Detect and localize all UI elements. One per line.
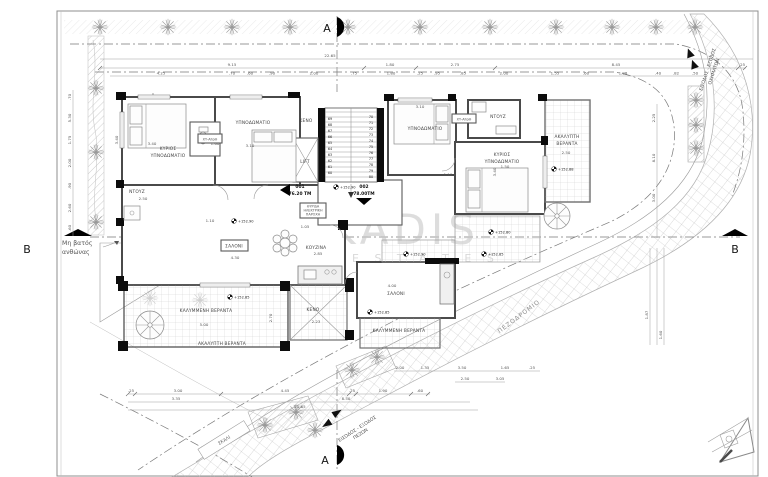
repeated-value: 3.35 [172,396,181,401]
repeated-value: 68 [328,123,332,127]
repeated-value: 2.00 [396,365,405,370]
repeated-value: 2.50 [562,150,571,155]
label-master-left-2: ΥΠΝΟΔΩΜΑΤΙΟ [150,153,186,159]
repeated-value: 4.30 [231,255,240,260]
vehicle-entry-arrows-icon [684,47,699,69]
dim-row-top-main: 9.151.802.758.45.25 [228,62,746,67]
north-arrow-icon [708,418,754,462]
level-marker-icon [368,310,373,315]
bed-icon [128,104,186,148]
repeated-value: 66 [328,135,332,139]
label-bedroom-right: ΥΠΝΟΔΩΜΑΤΙΟ [407,126,443,132]
repeated-value: +152.85 [234,296,250,300]
repeated-value: 8.50 [342,396,351,401]
repeated-value: 9.15 [228,62,237,67]
repeated-value: 8.45 [612,62,621,67]
repeated-value: +152.85 [488,253,504,257]
repeated-value: 2.70 [268,313,273,322]
repeated-value: 2.50 [139,196,148,201]
repeated-value: 3.10 [416,104,425,109]
repeated-value: 2.85 [314,251,323,256]
repeated-value: .40 [655,71,662,76]
dim-bottom-row3: 21.65 [294,404,306,409]
repeated-value: 71 [369,121,373,125]
repeated-value: 4.25 [157,71,166,76]
floor-plan-sheet: A A B B KADIS E S T A T E S [0,0,768,477]
repeated-value: 4.45 [281,388,290,393]
label-covered-veranda-002: ΚΑΛΥΜΜΕΝΗ ΒΕΡΑΝΤΑ [373,328,426,334]
label-lift: LIFT [300,159,310,165]
flowerbed-label-1: Μη βατός [62,239,93,247]
repeated-value: 5.00 [200,322,209,327]
repeated-value: 75 [369,145,373,149]
level-marker-icon [232,219,237,224]
repeated-value: 2.60 [67,203,72,212]
repeated-value: 2.00 [310,71,319,76]
repeated-value: 3.40 [148,141,157,146]
repeated-value: 64 [328,147,332,151]
dim-road-row2: 2.503.05 [461,376,505,381]
label-master-right-1: ΚΥΡΙΟΣ [494,152,511,158]
label-covered-veranda-left: ΚΑΛΥΜΜΕΝΗ ΒΕΡΑΝΤΑ [180,308,233,314]
repeated-value: 63 [328,153,332,157]
repeated-value: 5.30 [67,113,72,122]
repeated-value: .70 [67,93,72,100]
label-void-stair: ΚΕΝΟ [300,118,313,124]
repeated-value: .75 [351,71,358,76]
dim-row-top-small: 4.25.70.60.902.00.751.80.25.95.852.001.5… [157,71,699,76]
repeated-value: 2.00 [500,71,509,76]
label-uncovered-veranda-left: ΑΚΑΛΥΠΤΗ ΒΕΡΑΝΤΑ [198,341,246,347]
level-marker-icon [489,230,494,235]
repeated-value: 65 [328,141,332,145]
label-living-001: ΣΑΛΟΝΙ [225,244,243,250]
repeated-value: 1.75 [67,135,72,144]
repeated-value: .90 [269,71,276,76]
level-marker-icon [228,295,233,300]
repeated-value: .60 [67,224,72,231]
repeated-value: .60 [247,71,254,76]
repeated-value: .95 [434,71,441,76]
label-void-2: ΚΕΝΟ [307,307,320,313]
unit-002-area: 78.00ΤΜ [353,191,374,197]
section-letter-a-bottom: A [321,454,329,467]
label-living-002: ΣΑΛΟΝΙ [387,291,405,297]
repeated-value: 80 [369,175,373,179]
repeated-value: .70 [229,71,236,76]
unit-001-number: 001 [295,184,304,190]
repeated-value: +152.90 [410,253,426,257]
repeated-value: +152.80 [495,231,511,235]
repeated-value: 1.60 [211,141,220,146]
repeated-value: 2.75 [451,62,460,67]
repeated-value: 2.25 [651,113,656,122]
repeated-value: .82 [673,71,680,76]
repeated-value: 1.87 [644,310,649,319]
repeated-value: .25 [349,388,356,393]
repeated-value: 67 [328,129,332,133]
repeated-value: 69 [328,117,332,121]
repeated-value: 77 [369,157,373,161]
repeated-value: 3.00 [174,388,183,393]
repeated-value: 61 [328,165,332,169]
flowerbed-label-2: ανθώνας [62,248,90,256]
repeated-value: +152.90 [238,220,254,224]
dim-right-chain: 2.258.103.00 [651,113,656,202]
repeated-value: 1.10 [444,172,453,177]
repeated-value: 3.40 [492,167,497,176]
spiral-stair-icon [136,311,164,339]
kitchen-counter [298,266,342,284]
repeated-value: 3.50 [458,365,467,370]
floor-plan-drawing: A A B B KADIS E S T A T E S [0,0,768,477]
level-marker-icon [482,252,487,257]
repeated-value: 1.35 [421,365,430,370]
repeated-value: .50 [692,71,699,76]
repeated-value: 3.10 [246,143,255,148]
repeated-value: .60 [417,388,424,393]
section-letter-a-top: A [323,22,331,35]
repeated-value: 3.00 [651,193,656,202]
repeated-value: 4.00 [388,283,397,288]
repeated-value: 74 [369,139,373,143]
shower-tray-icon [124,206,140,220]
section-letter-b-right: B [731,243,739,256]
repeated-value: 3.05 [496,376,505,381]
dim-row-top-total: 22.65 [324,53,336,58]
dim-right-lower: 1.871.60 [644,310,663,339]
bed-icon [466,168,528,212]
repeated-value: +152.85 [374,311,390,315]
window [230,95,262,99]
window [543,156,547,188]
repeated-value: 2.23 [312,319,321,324]
repeated-value: 62 [328,159,332,163]
repeated-value: 1.90 [379,388,388,393]
repeated-value: .85 [460,71,467,76]
repeated-value: .25 [529,365,536,370]
window [200,283,250,287]
label-shower-left: ΝΤΟΥΖ [129,189,145,195]
repeated-value: .25 [739,62,746,67]
label-shower-right: ΝΤΟΥΖ [490,114,506,120]
repeated-value: .25 [128,388,135,393]
level-marker-icon [334,185,339,190]
repeated-value: 1.50 [501,164,510,169]
level-marker-icon [404,252,409,257]
repeated-value: 2.50 [461,376,470,381]
repeated-value: 72 [369,127,373,131]
section-flag-a-bottom [337,445,344,465]
repeated-value: +152.88 [558,168,574,172]
meter-line3: ΠΑΡΟΧΗ [306,213,321,217]
repeated-value: 73 [369,133,373,137]
repeated-value: 1.65 [501,365,510,370]
repeated-value: 22.65 [324,53,336,58]
repeated-value: 1.80 [386,62,395,67]
repeated-value: 2.00 [67,158,72,167]
repeated-value: 1.80 [387,71,396,76]
repeated-value: 78 [369,163,373,167]
dim-left-chain: .705.301.752.00.902.60.60 [67,93,72,231]
pedestrian-entry-label: ΕΙΣΟΔΟΣ - ΕΞΟΔΟΣ ΠΕΖΩΝ [337,415,381,449]
repeated-value: +152.90 [340,186,356,190]
label-master-left-1: ΚΥΡΙΟΣ [160,146,177,152]
level-marker-icon [552,167,557,172]
step-numbers-right: 7071727374757677787980 [369,115,373,179]
repeated-value: 21.65 [294,404,306,409]
repeated-value: 60 [328,171,332,175]
repeated-value: 1.98 [619,71,628,76]
repeated-value: .25 [417,71,424,76]
label-uncovered-right-2: ΒΕΡΑΝΤΑ [556,141,577,147]
repeated-value: 79 [369,169,373,173]
label-storage-right: ΧΥ-ΑποΘ [457,118,472,122]
bed-icon [252,130,296,182]
repeated-value: .60 [583,71,590,76]
repeated-value: 1.55 [551,71,560,76]
repeated-value: 70 [369,115,373,119]
repeated-value: 1.10 [206,218,215,223]
unit-002-number: 002 [359,184,368,190]
spiral-stair-icon [544,203,570,229]
bed-icon [394,104,450,144]
repeated-value: 76 [369,151,373,155]
label-uncovered-right-1: ΑΚΑΛΥΠΤΗ [555,134,580,140]
window [120,112,124,148]
repeated-value: .90 [67,182,72,189]
window [398,98,432,102]
kitchen-counter [440,264,454,304]
label-bedroom-left: ΥΠΝΟΔΩΜΑΤΙΟ [235,120,271,126]
repeated-value: 1.60 [658,330,663,339]
section-flag-b-right [722,229,748,236]
repeated-value: 1.05 [301,224,310,229]
window [138,95,170,99]
repeated-value: 3.40 [114,135,119,144]
repeated-value: 8.10 [651,153,656,162]
unit-001-area: 76.20 ΤΜ [289,191,312,197]
dim-bottom-row1: .253.004.45.251.90.60 [128,388,424,393]
section-letter-b-left: B [23,243,31,256]
